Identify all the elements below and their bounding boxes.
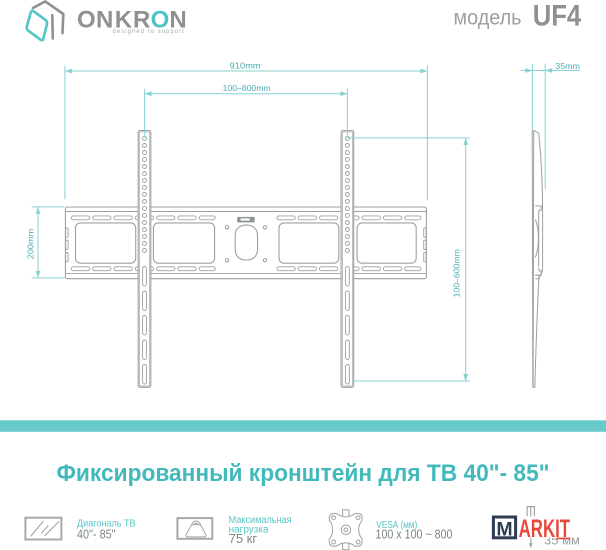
svg-text:35mm: 35mm (555, 62, 580, 71)
svg-text:75 кг: 75 кг (229, 531, 258, 546)
svg-text:M: M (496, 518, 512, 540)
svg-text:100–800mm: 100–800mm (223, 84, 271, 93)
svg-text:Фиксированный кронштейн для ТВ: Фиксированный кронштейн для ТВ 40"- 85" (57, 460, 550, 487)
svg-text:O: O (77, 7, 96, 34)
svg-text:40"- 85": 40"- 85" (77, 526, 116, 541)
svg-text:100 x 100 ~ 800: 100 x 100 ~ 800 (376, 527, 453, 542)
svg-text:UF4: UF4 (533, 0, 582, 33)
svg-text:designed to support: designed to support (113, 29, 186, 35)
svg-text:100–600mm: 100–600mm (453, 249, 462, 297)
svg-text:N: N (96, 7, 113, 34)
svg-text:модель: модель (454, 7, 522, 30)
svg-text:910mm: 910mm (230, 62, 261, 71)
svg-text:200mm: 200mm (26, 229, 35, 260)
